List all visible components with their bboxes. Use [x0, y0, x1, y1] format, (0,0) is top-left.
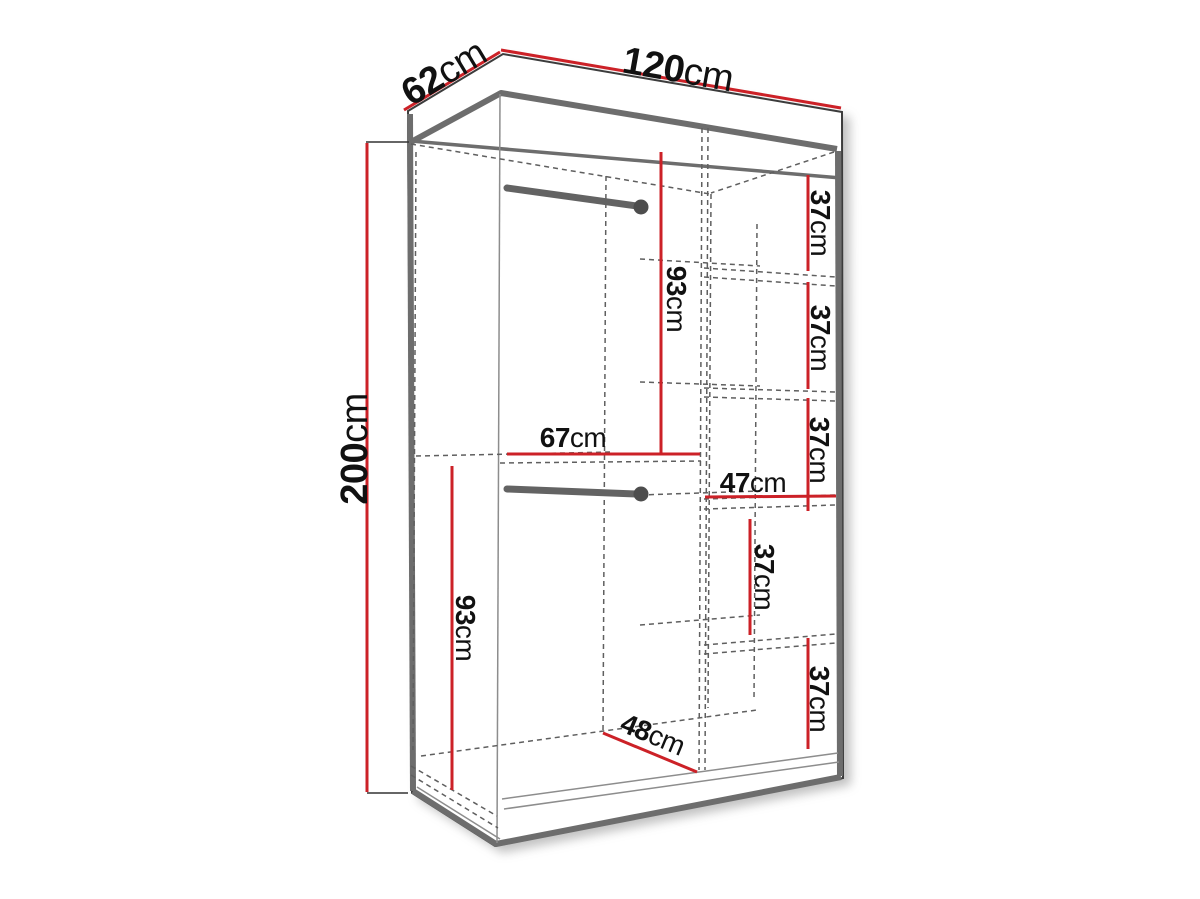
dim-value: 67 — [540, 422, 570, 453]
dim-value: 37 — [805, 305, 836, 335]
dim-value: 37 — [804, 666, 835, 696]
dim-label-shelf-2: 37cm — [805, 305, 836, 371]
dim-unit: cm — [570, 422, 606, 453]
cabinet-left-edge — [410, 114, 413, 791]
dim-unit: cm — [804, 696, 835, 732]
dim-label-shelf-col-width: 47cm — [720, 467, 786, 498]
dim-label-shelf-5: 37cm — [804, 666, 835, 732]
dim-label-height-text: 200cm — [334, 393, 376, 505]
dim-value: 200 — [334, 443, 376, 505]
dim-value: 47 — [720, 467, 750, 498]
dim-label-shelf-1-text: 37cm — [805, 190, 836, 256]
dim-unit: cm — [805, 335, 836, 371]
dim-label-shelf-5-text: 37cm — [804, 666, 835, 732]
dim-unit: cm — [749, 574, 780, 610]
dim-label-shelf-col-width-text: 47cm — [720, 467, 786, 498]
dim-label-shelf-2-text: 37cm — [805, 305, 836, 371]
diagram-canvas: 62cm 120cm 200cm 93cm 67cm 47cm 37cm 37c… — [0, 0, 1200, 899]
cabinet-right-edge — [838, 151, 840, 776]
dim-label-upper-hang-text: 93cm — [661, 266, 692, 332]
wardrobe-dimension-diagram: 62cm 120cm 200cm 93cm 67cm 47cm 37cm 37c… — [0, 0, 1200, 899]
dim-label-shelf-3: 37cm — [804, 417, 835, 483]
dim-unit: cm — [680, 50, 736, 100]
lower-rod-end-knob — [634, 487, 649, 502]
upper-rod-end-knob — [634, 200, 649, 215]
dim-label-upper-hang: 93cm — [661, 266, 692, 332]
dim-value: 93 — [661, 266, 692, 296]
dim-value: 93 — [450, 595, 481, 625]
dim-label-shelf-1: 37cm — [805, 190, 836, 256]
dim-unit: cm — [750, 467, 786, 498]
dim-unit: cm — [804, 447, 835, 483]
dim-unit: cm — [334, 393, 376, 443]
dim-value: 37 — [804, 417, 835, 447]
dim-value: 37 — [805, 190, 836, 220]
dim-label-lower-hang-text: 93cm — [450, 595, 481, 661]
dim-label-left-width-text: 67cm — [540, 422, 606, 453]
lower-hanging-rod — [507, 489, 637, 494]
dim-unit: cm — [805, 220, 836, 256]
dim-label-left-width: 67cm — [540, 422, 606, 453]
dim-label-shelf-4-text: 37cm — [749, 544, 780, 610]
dim-label-shelf-3-text: 37cm — [804, 417, 835, 483]
dim-label-lower-hang: 93cm — [450, 595, 481, 661]
dim-unit: cm — [450, 625, 481, 661]
dim-unit: cm — [661, 296, 692, 332]
dim-label-height: 200cm — [334, 393, 376, 505]
dim-value: 37 — [749, 544, 780, 574]
dim-label-shelf-4: 37cm — [749, 544, 780, 610]
